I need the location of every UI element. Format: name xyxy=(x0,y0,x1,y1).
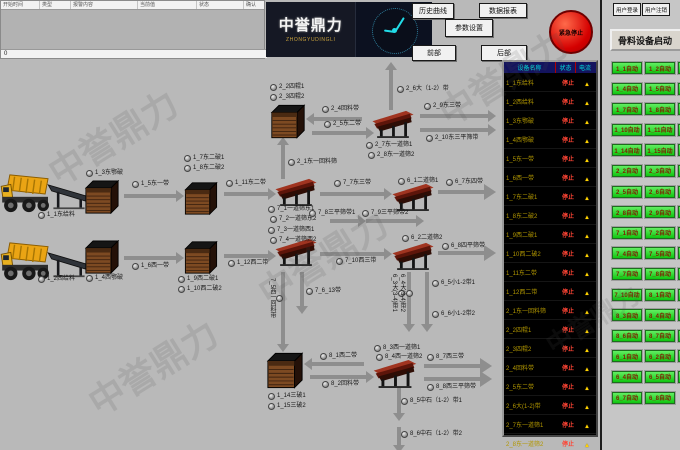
current-cell: ▲ xyxy=(578,225,596,243)
device-name: 1_6西一带 xyxy=(504,173,558,182)
belt-arrow-8_1 xyxy=(312,362,364,366)
label-6_1: 6_1二道筛1 xyxy=(398,178,438,185)
ammeter-icon[interactable]: ▲ xyxy=(584,329,590,335)
ammeter-icon[interactable]: ▲ xyxy=(584,196,590,202)
label-7_6: 7_6_13带 xyxy=(306,288,341,295)
label-2_5: 2_5东二带 xyxy=(324,121,361,128)
emergency-stop-button[interactable]: 紧急停止 xyxy=(549,10,593,54)
belt-arrow-7_6 xyxy=(300,272,304,306)
label-8_6: 8_6中石（1-2）带2 xyxy=(401,431,462,438)
auto-button-8_7[interactable]: 8_7自动 xyxy=(645,330,675,342)
label-7_2: 7_2一道筛东2 xyxy=(270,216,316,223)
table-row: 2_6大(1-2)带停止▲ xyxy=(504,396,596,415)
ammeter-icon[interactable]: ▲ xyxy=(584,158,590,164)
device-name: 1_11东二带 xyxy=(504,268,558,277)
crusher-icon xyxy=(84,180,120,214)
label-6_5: 6_5小1-2带1 xyxy=(432,280,475,287)
current-cell: ▲ xyxy=(578,320,596,338)
current-cell: ▲ xyxy=(578,168,596,186)
belt-arrow-8_2 xyxy=(310,375,366,379)
label-8_7: 8_7西三带 xyxy=(427,354,464,361)
device-name: 2_1东一回料筛 xyxy=(504,306,558,315)
ammeter-icon[interactable]: ▲ xyxy=(584,386,590,392)
user-login-button[interactable]: 用户登录 xyxy=(613,3,641,16)
table-row: 1_2西给料停止▲ xyxy=(504,92,596,111)
table-body: 1_1东给料停止▲1_2西给料停止▲1_3东鄂破停止▲1_4西鄂破停止▲1_5东… xyxy=(504,73,596,450)
status-value: 停止 xyxy=(558,268,578,277)
label-8_1: 8_1西二带 xyxy=(320,353,357,360)
clock-pivot xyxy=(392,28,397,33)
user-logout-button[interactable]: 用户注销 xyxy=(642,3,670,16)
company-logo: 中誉鼎力 ZHONGYUDINGLI xyxy=(266,2,355,57)
current-cell: ▲ xyxy=(578,396,596,414)
data-report-button[interactable]: 数据报表 xyxy=(479,3,527,18)
alarm-count: 0 xyxy=(1,49,267,58)
auto-button-1_4[interactable]: 1_4自动 xyxy=(612,83,642,95)
status-value: 停止 xyxy=(558,401,578,410)
hmi-screen: 中誉鼎力 中誉鼎力 中誉鼎力 中誉鼎力 中誉鼎力 开始时间类型报警内容当前值状态… xyxy=(0,0,680,450)
label-1_2: 1_2西给料 xyxy=(38,276,75,283)
status-value: 停止 xyxy=(558,135,578,144)
table-header-row: 设备名称 状态 电流 xyxy=(504,62,596,73)
crusher-icon xyxy=(266,352,304,389)
crusher-icon xyxy=(182,182,220,215)
ammeter-icon[interactable]: ▲ xyxy=(584,367,590,373)
label-1_15: 1_15三破2 xyxy=(268,403,306,410)
auto-button-1_5[interactable]: 1_5自动 xyxy=(645,83,675,95)
belt-arrow-1_6 xyxy=(124,256,176,260)
belt-arrow-2_10 xyxy=(420,128,488,132)
auto-button-8_1[interactable]: 8_1自动 xyxy=(645,289,675,301)
label-8_5: 8_5中石（1-2）带1 xyxy=(401,398,462,405)
status-value: 停止 xyxy=(558,173,578,182)
status-value: 停止 xyxy=(558,211,578,220)
status-value: 停止 xyxy=(558,439,578,448)
alarm-panel: 开始时间类型报警内容当前值状态确认 0 xyxy=(0,0,265,59)
brand-panel: 中誉鼎力 ZHONGYUDINGLI xyxy=(266,2,432,57)
label-8_4: 8_4西一道筛2 xyxy=(376,354,422,361)
auto-button-2_6[interactable]: 2_6自动 xyxy=(645,186,675,198)
status-value: 停止 xyxy=(558,230,578,239)
right-control-panel: 用户登录 用户注销 骨料设备启动 1_1自动1_2自动1_3自动1_4自动1_5… xyxy=(600,0,680,450)
table-row: 2_2四辊1停止▲ xyxy=(504,320,596,339)
table-row: 2_7东一道筛1停止▲ xyxy=(504,415,596,434)
logo-title: 中誉鼎力 xyxy=(266,14,355,35)
crusher-icon xyxy=(182,241,220,274)
auto-button-1_8[interactable]: 1_8自动 xyxy=(645,103,675,115)
watermark: 中誉鼎力 xyxy=(77,306,227,426)
current-cell: ▲ xyxy=(578,149,596,167)
auto-button-7_7[interactable]: 7_7自动 xyxy=(612,268,642,280)
label-7_10: 7_10西三带 xyxy=(336,258,376,265)
device-name: 2_8东一道筛2 xyxy=(504,439,558,448)
current-cell: ▲ xyxy=(578,92,596,110)
label-8_8: 8_8西三平筛带 xyxy=(427,384,476,391)
belt-arrow-2_9 xyxy=(420,114,488,118)
label-8_3: 8_3西一道筛1 xyxy=(374,345,420,352)
table-row: 2_3四辊2停止▲ xyxy=(504,339,596,358)
auto-button-2_9[interactable]: 2_9自动 xyxy=(645,206,675,218)
column-header-current: 电流 xyxy=(576,62,594,73)
ammeter-icon[interactable]: ▲ xyxy=(584,424,590,430)
table-row: 2_5东二带停止▲ xyxy=(504,377,596,396)
belt-arrow-6_5-6_6 xyxy=(425,272,429,324)
status-value: 停止 xyxy=(558,192,578,201)
status-value: 停止 xyxy=(558,382,578,391)
current-cell: ▲ xyxy=(578,339,596,357)
table-row: 1_1东给料停止▲ xyxy=(504,73,596,92)
ammeter-icon[interactable]: ▲ xyxy=(584,291,590,297)
belt-arrow-6_8 xyxy=(438,251,484,255)
status-value: 停止 xyxy=(558,344,578,353)
belt-arrow-1_12 xyxy=(224,254,268,258)
ammeter-icon[interactable]: ▲ xyxy=(584,310,590,316)
table-row: 2_1东一回料筛停止▲ xyxy=(504,301,596,320)
auto-button-1_15[interactable]: 1_15自动 xyxy=(645,144,675,156)
device-name: 2_2四辊1 xyxy=(504,325,558,334)
ammeter-icon[interactable]: ▲ xyxy=(584,348,590,354)
device-name: 1_5东一带 xyxy=(504,154,558,163)
label-1_6: 1_6西一带 xyxy=(132,263,169,270)
parameter-settings-button[interactable]: 参数设置 xyxy=(445,19,493,37)
front-section-button[interactable]: 前部 xyxy=(412,45,456,61)
label-6_8: 6_8四平筛带 xyxy=(442,243,485,250)
auto-button-7_8[interactable]: 7_8自动 xyxy=(645,268,675,280)
belt-arrow-8_7 xyxy=(424,364,480,368)
current-cell: ▲ xyxy=(578,187,596,205)
device-name: 1_8东二破2 xyxy=(504,211,558,220)
auto-button-7_5[interactable]: 7_5自动 xyxy=(645,247,675,259)
table-row: 1_6西一带停止▲ xyxy=(504,168,596,187)
label-2_2: 2_2四辊1 xyxy=(270,84,304,91)
device-name: 1_3东鄂破 xyxy=(504,116,558,125)
ammeter-icon[interactable]: ▲ xyxy=(584,215,590,221)
table-row: 1_4西鄂破停止▲ xyxy=(504,130,596,149)
status-value: 停止 xyxy=(558,306,578,315)
auto-button-7_10[interactable]: 7_10自动 xyxy=(612,289,642,301)
current-cell: ▲ xyxy=(578,263,596,281)
auto-button-1_11[interactable]: 1_11自动 xyxy=(645,124,675,136)
alarm-column-header: 状态 xyxy=(197,1,244,9)
vibrating-screen-icon xyxy=(274,178,318,206)
label-6_7: 6_7东四带 xyxy=(446,179,483,186)
table-row: 1_3东鄂破停止▲ xyxy=(504,111,596,130)
device-name: 2_3四辊2 xyxy=(504,344,558,353)
belt-arrow-1_11 xyxy=(224,192,268,196)
label-2_9: 2_9东三带 xyxy=(424,103,461,110)
auto-button-6_7[interactable]: 6_7自动 xyxy=(612,392,642,404)
auto-button-grid: 1_1自动1_2自动1_3自动1_4自动1_5自动1_6自动1_7自动1_8自动… xyxy=(612,62,680,412)
status-value: 停止 xyxy=(558,363,578,372)
current-cell: ▲ xyxy=(578,415,596,433)
current-cell: ▲ xyxy=(578,244,596,262)
table-row: 1_8东二破2停止▲ xyxy=(504,206,596,225)
auto-button-2_2[interactable]: 2_2自动 xyxy=(612,165,642,177)
current-cell: ▲ xyxy=(578,358,596,376)
status-value: 停止 xyxy=(558,287,578,296)
label-2_3: 2_3四辊2 xyxy=(270,94,304,101)
status-value: 停止 xyxy=(558,154,578,163)
auto-button-2_5[interactable]: 2_5自动 xyxy=(612,186,642,198)
auto-button-7_4[interactable]: 7_4自动 xyxy=(612,247,642,259)
alarm-column-header: 报警内容 xyxy=(71,1,138,9)
label-2_1: 2_1东一回料筛 xyxy=(288,159,337,166)
panel-title: 骨料设备启动 xyxy=(610,29,680,51)
belt-arrow-2_5 xyxy=(312,131,366,135)
device-name: 1_2西给料 xyxy=(504,97,558,106)
device-name: 1_1东给料 xyxy=(504,78,558,87)
label-1_5: 1_5东一带 xyxy=(132,181,169,188)
rear-section-button[interactable]: 后部 xyxy=(481,45,527,61)
auto-button-2_8[interactable]: 2_8自动 xyxy=(612,206,642,218)
label-2_7: 2_7东一道筛1 xyxy=(366,142,412,149)
auto-button-6_5[interactable]: 6_5自动 xyxy=(645,371,675,383)
auto-button-1_14[interactable]: 1_14自动 xyxy=(612,144,642,156)
current-cell: ▲ xyxy=(578,377,596,395)
label-2_6: 2_6大（1-2）带 xyxy=(397,86,449,93)
label-1_8: 1_8东二破2 xyxy=(184,165,224,172)
label-1_11: 1_11东二带 xyxy=(226,180,266,187)
alarm-column-header: 确认 xyxy=(244,1,264,9)
ammeter-icon[interactable]: ▲ xyxy=(584,120,590,126)
label-1_1: 1_1东给料 xyxy=(38,212,75,219)
device-name: 1_10西二破2 xyxy=(504,249,558,258)
ammeter-icon[interactable]: ▲ xyxy=(584,405,590,411)
label-8_2: 8_2回料带 xyxy=(322,381,359,388)
label-2_8: 2_8东一道筛2 xyxy=(368,152,414,159)
belt-arrow-7_9 xyxy=(366,219,416,223)
current-cell: ▲ xyxy=(578,73,596,91)
label-7_5: 7_5西一回料带 xyxy=(268,278,283,318)
label-1_4: 1_4西鄂破 xyxy=(86,275,123,282)
column-header-status: 状态 xyxy=(556,62,576,73)
label-1_12: 1_12西二带 xyxy=(228,260,268,267)
vibrating-screen-icon xyxy=(372,359,418,388)
label-7_1: 7_1一道筛东1 xyxy=(268,206,314,213)
device-name: 2_5东二带 xyxy=(504,382,558,391)
belt-arrow-7_10 xyxy=(320,252,384,256)
ammeter-icon[interactable]: ▲ xyxy=(584,443,590,449)
device-name: 1_7东二破1 xyxy=(504,192,558,201)
crusher-icon xyxy=(84,240,120,274)
current-cell: ▲ xyxy=(578,206,596,224)
device-name: 2_4回料带 xyxy=(504,363,558,372)
table-row: 1_11东二带停止▲ xyxy=(504,263,596,282)
table-row: 1_12西二带停止▲ xyxy=(504,282,596,301)
column-header-name: 设备名称 xyxy=(504,62,556,73)
label-1_14: 1_14三破1 xyxy=(268,393,306,400)
belt-arrow-6_7 xyxy=(438,190,484,194)
label-7_9: 7_9三平筛带2 xyxy=(362,210,408,217)
auto-button-6_8[interactable]: 6_8自动 xyxy=(645,392,675,404)
device-name: 1_9西二破1 xyxy=(504,230,558,239)
table-row: 1_10西二破2停止▲ xyxy=(504,244,596,263)
current-cell: ▲ xyxy=(578,111,596,129)
status-value: 停止 xyxy=(558,78,578,87)
auto-button-8_4[interactable]: 8_4自动 xyxy=(645,309,675,321)
belt-arrow-2_6 xyxy=(389,70,393,110)
label-1_9: 1_9西二破1 xyxy=(178,276,218,283)
label-6_2: 6_2二道筛2 xyxy=(402,235,442,242)
auto-button-1_2[interactable]: 1_2自动 xyxy=(645,62,675,74)
status-value: 停止 xyxy=(558,97,578,106)
label-6_4: 6_4大(3-4)带2 xyxy=(398,274,413,312)
device-name: 1_4西鄂破 xyxy=(504,135,558,144)
device-name: 1_12西二带 xyxy=(504,287,558,296)
label-7_4: 7_4一道筛西2 xyxy=(270,237,316,244)
label-1_10: 1_10西二破2 xyxy=(178,286,222,293)
auto-button-1_1[interactable]: 1_1自动 xyxy=(612,62,642,74)
auto-button-7_2[interactable]: 7_2自动 xyxy=(645,227,675,239)
alarm-header-row: 开始时间类型报警内容当前值状态确认 xyxy=(1,1,264,10)
belt-arrow-2_1 xyxy=(281,145,285,179)
status-value: 停止 xyxy=(558,420,578,429)
vibrating-screen-icon xyxy=(391,242,435,270)
table-row: 2_4回料带停止▲ xyxy=(504,358,596,377)
device-name: 2_7东一道筛1 xyxy=(504,420,558,429)
label-7_8: 7_8三平筛带1 xyxy=(309,210,355,217)
auto-button-6_4[interactable]: 6_4自动 xyxy=(612,371,642,383)
label-7_3: 7_3一道筛西1 xyxy=(268,227,314,234)
label-1_7: 1_7东二破1 xyxy=(184,155,224,162)
table-row: 1_9西二破1停止▲ xyxy=(504,225,596,244)
label-1_3: 1_3东鄂破 xyxy=(86,170,123,177)
belt-arrow-7_8 xyxy=(330,219,358,223)
auto-button-7_1[interactable]: 7_1自动 xyxy=(612,227,642,239)
auto-button-8_3[interactable]: 8_3自动 xyxy=(612,309,642,321)
alarm-column-header: 当前值 xyxy=(138,1,197,9)
logo-subtitle: ZHONGYUDINGLI xyxy=(266,37,355,43)
label-2_10: 2_10东三平筛带 xyxy=(426,135,478,142)
auto-button-6_2[interactable]: 6_2自动 xyxy=(645,350,675,362)
table-row: 1_5东一带停止▲ xyxy=(504,149,596,168)
current-cell: ▲ xyxy=(578,282,596,300)
current-cell: ▲ xyxy=(578,130,596,148)
ammeter-icon[interactable]: ▲ xyxy=(584,272,590,278)
history-curve-button[interactable]: 历史曲线 xyxy=(412,3,454,19)
watermark: 中誉鼎力 xyxy=(37,76,187,196)
label-6_6: 6_6小1-2带2 xyxy=(432,311,475,318)
table-row: 1_7东二破1停止▲ xyxy=(504,187,596,206)
auto-button-1_10[interactable]: 1_10自动 xyxy=(612,124,642,136)
vibrating-screen-icon xyxy=(371,110,415,138)
roll-crusher-icon xyxy=(270,104,306,139)
status-value: 停止 xyxy=(558,325,578,334)
label-7_7: 7_7东三带 xyxy=(334,180,371,187)
auto-button-6_1[interactable]: 6_1自动 xyxy=(612,350,642,362)
belt-arrow-8_8 xyxy=(424,377,480,381)
equipment-status-table: 设备名称 状态 电流 1_1东给料停止▲1_2西给料停止▲1_3东鄂破停止▲1_… xyxy=(502,60,598,437)
belt-arrow-1_5 xyxy=(124,194,176,198)
ammeter-icon[interactable]: ▲ xyxy=(584,253,590,259)
auto-button-8_6[interactable]: 8_6自动 xyxy=(612,330,642,342)
vibrating-screen-icon xyxy=(391,183,435,211)
alarm-column-header: 开始时间 xyxy=(1,1,40,9)
current-cell: ▲ xyxy=(578,301,596,319)
auto-button-2_3[interactable]: 2_3自动 xyxy=(645,165,675,177)
status-value: 停止 xyxy=(558,249,578,258)
ammeter-icon[interactable]: ▲ xyxy=(584,101,590,107)
ammeter-icon[interactable]: ▲ xyxy=(584,82,590,88)
ammeter-icon[interactable]: ▲ xyxy=(584,139,590,145)
table-row: 2_8东一道筛2停止▲ xyxy=(504,434,596,450)
ammeter-icon[interactable]: ▲ xyxy=(584,234,590,240)
status-value: 停止 xyxy=(558,116,578,125)
alarm-column-header: 类型 xyxy=(40,1,71,9)
ammeter-icon[interactable]: ▲ xyxy=(584,177,590,183)
device-name: 2_6大(1-2)带 xyxy=(504,401,558,410)
label-2_4: 2_4回料带 xyxy=(322,106,359,113)
belt-arrow-7_7 xyxy=(320,192,384,196)
current-cell: ▲ xyxy=(578,434,596,450)
auto-button-1_7[interactable]: 1_7自动 xyxy=(612,103,642,115)
